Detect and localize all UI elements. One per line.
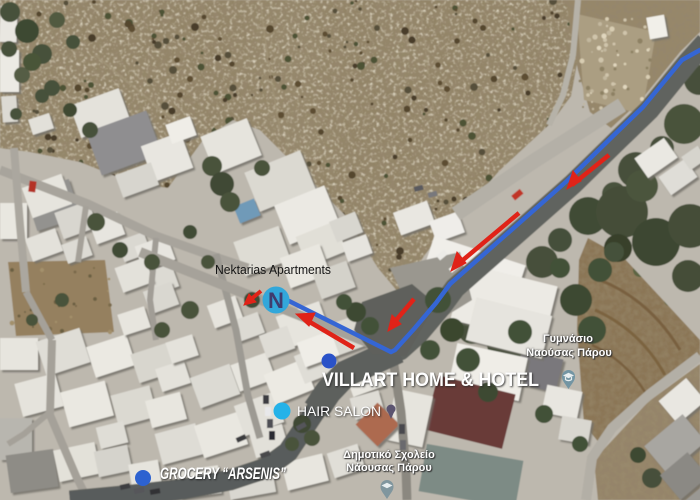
svg-text:Νάουσας Πάρου: Νάουσας Πάρου — [346, 462, 432, 474]
svg-text:Nektarias Apartments: Nektarias Apartments — [215, 262, 331, 277]
svg-text:Δημοτικό Σχολείο: Δημοτικό Σχολείο — [343, 449, 435, 461]
svg-text:GROCERY “ARSENIS”: GROCERY “ARSENIS” — [160, 465, 287, 483]
svg-text:Γυμνάσιο: Γυμνάσιο — [543, 333, 593, 345]
svg-text:VILLART HOME & HOTEL: VILLART HOME & HOTEL — [322, 369, 539, 391]
svg-text:HAIR SALON: HAIR SALON — [297, 403, 381, 419]
svg-text:Ναούσας Πάρου: Ναούσας Πάρου — [526, 347, 612, 359]
svg-text:N: N — [268, 288, 284, 313]
